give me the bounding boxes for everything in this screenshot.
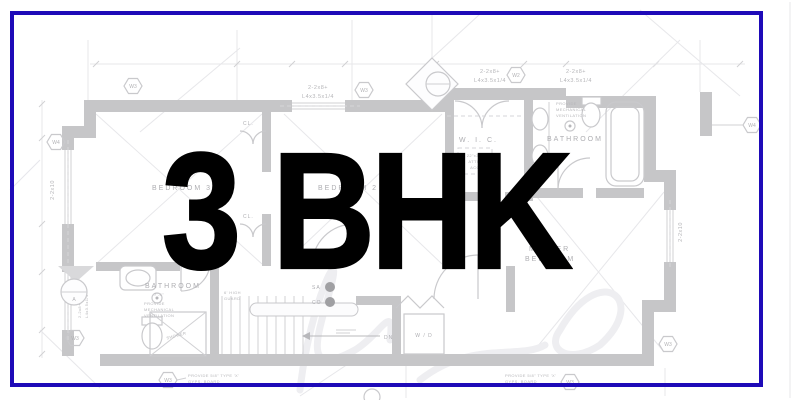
bhk-headline: 3 BHK (150, 136, 580, 288)
bhk-label: 3 BHK (162, 130, 568, 295)
property-card[interactable]: DN 6' HIGH GUARD BATHROOM 7'-4" PROVIDE … (0, 0, 800, 400)
level-marker-icon (364, 389, 380, 400)
